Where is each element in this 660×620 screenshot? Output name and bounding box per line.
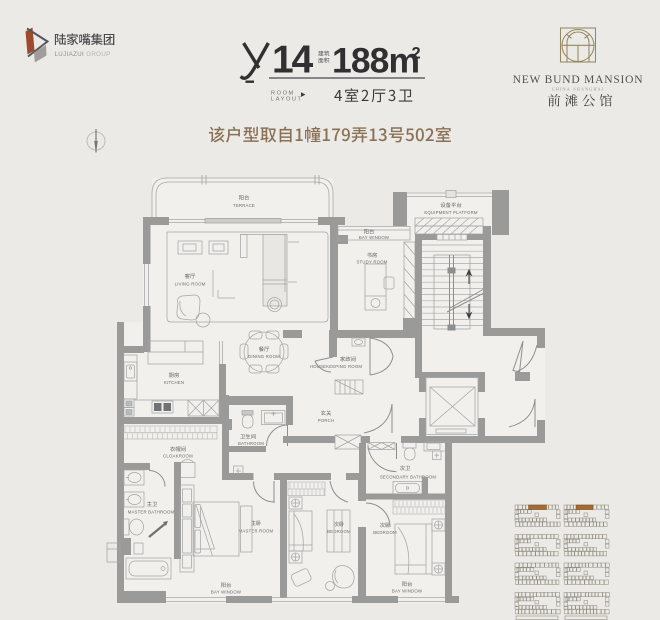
svg-text:CLOAKROOM: CLOAKROOM [163, 454, 193, 459]
svg-text:MASTER BATHROOM: MASTER BATHROOM [128, 510, 175, 515]
svg-text:TERRACE: TERRACE [233, 203, 255, 208]
svg-text:PORCH: PORCH [318, 418, 335, 423]
svg-text:LIVING ROOM: LIVING ROOM [175, 282, 206, 287]
svg-text:BAY WINDOW: BAY WINDOW [359, 235, 390, 240]
svg-text:188m: 188m [332, 41, 419, 81]
svg-text:LUJIAZUI GROUP: LUJIAZUI GROUP [55, 51, 111, 58]
svg-text:2: 2 [412, 45, 421, 63]
svg-text:NEW BUND MANSION: NEW BUND MANSION [513, 74, 644, 86]
svg-text:LAYOUT: LAYOUT [271, 97, 303, 103]
svg-text:MASTER ROOM: MASTER ROOM [239, 529, 274, 534]
svg-text:14: 14 [272, 39, 313, 82]
svg-text:BATHROOM: BATHROOM [238, 441, 264, 446]
svg-text:BAY WINDOW: BAY WINDOW [211, 590, 242, 595]
svg-text:BAY WINDOW: BAY WINDOW [392, 589, 423, 594]
svg-text:EQUIPMENT PLATFORM: EQUIPMENT PLATFORM [424, 210, 478, 215]
svg-text:KITCHEN: KITCHEN [164, 380, 184, 385]
svg-text:DINING ROOM: DINING ROOM [248, 354, 280, 359]
svg-text:BEDROOM: BEDROOM [373, 530, 397, 535]
svg-text:BEDROOM: BEDROOM [327, 529, 351, 534]
svg-text:CHINA·SHANGHAI: CHINA·SHANGHAI [552, 87, 604, 92]
